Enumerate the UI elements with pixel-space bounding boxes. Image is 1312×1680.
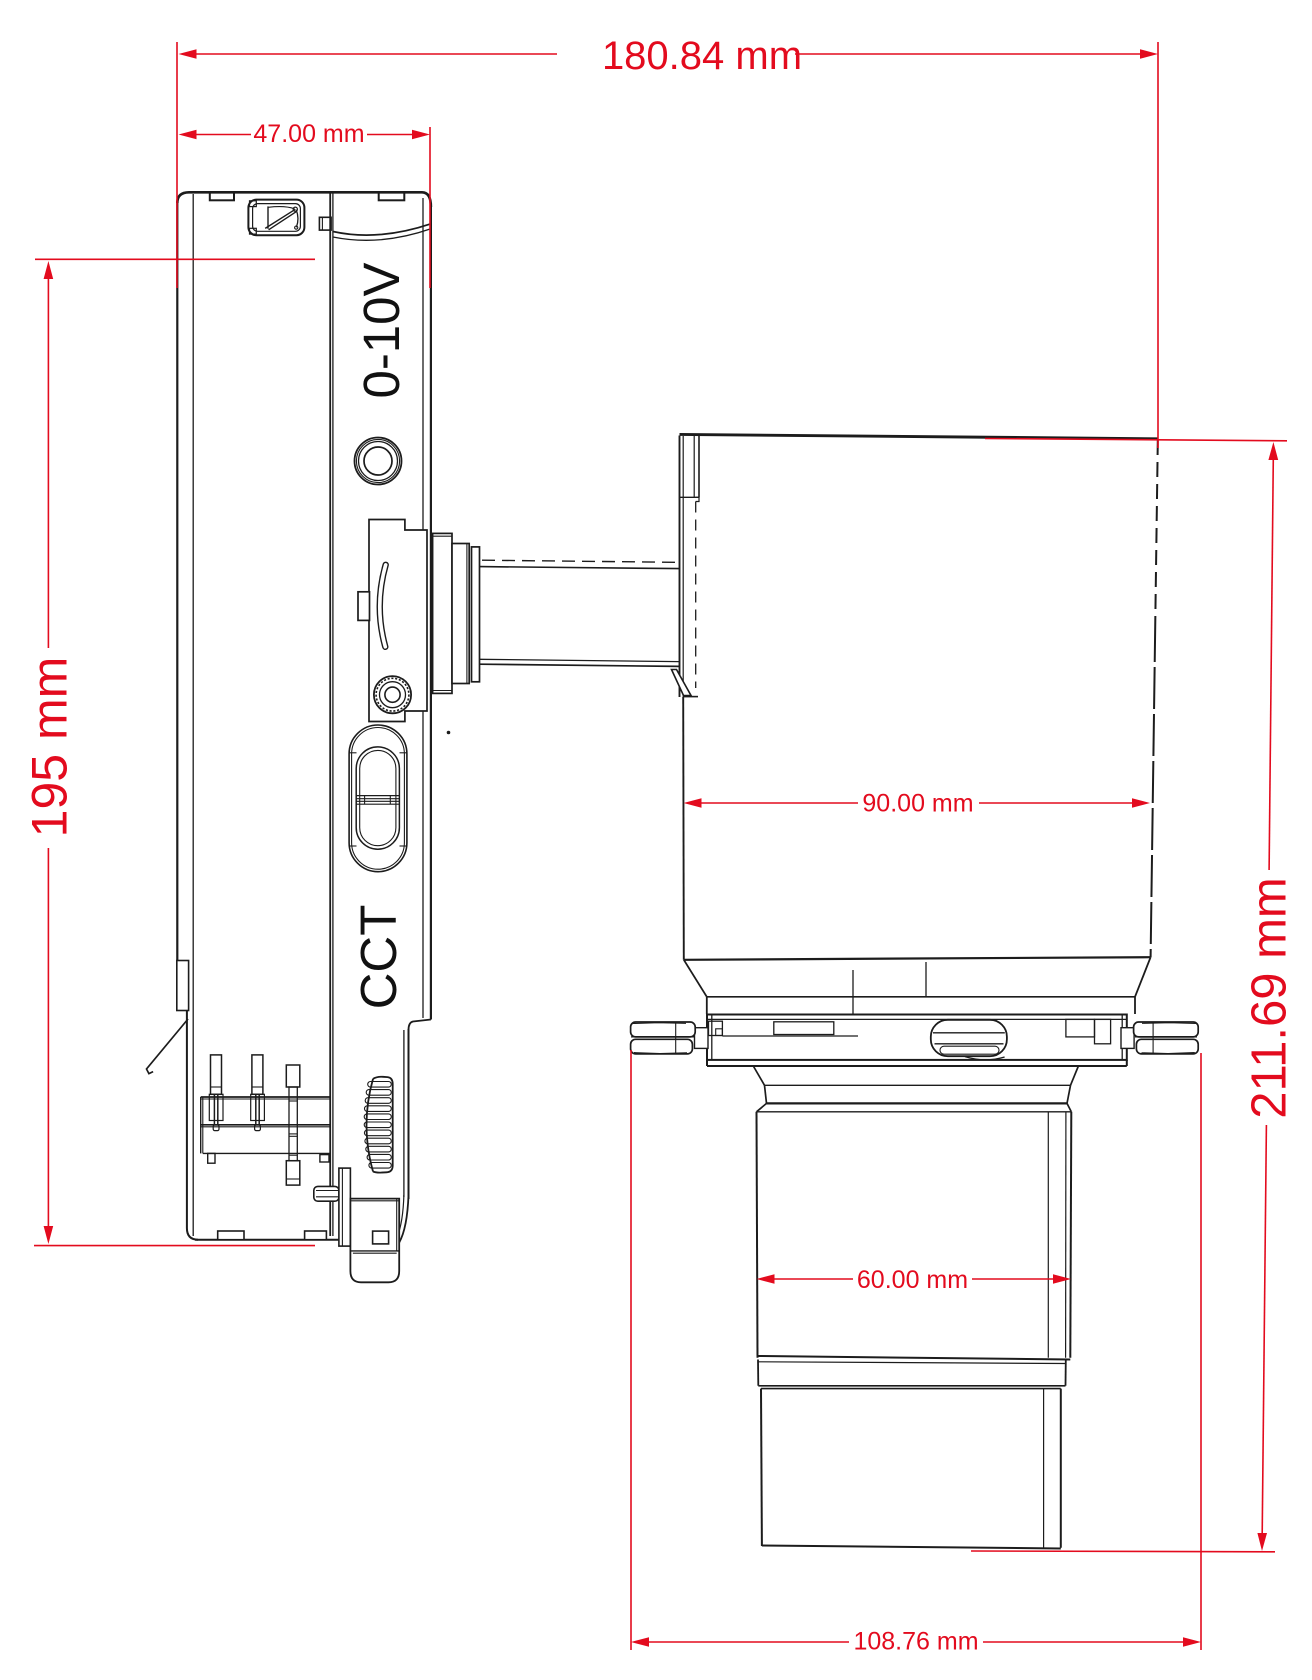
svg-text:108.76 mm: 108.76 mm (853, 1628, 978, 1656)
svg-text:CCT: CCT (350, 905, 407, 1010)
svg-text:60.00 mm: 60.00 mm (857, 1266, 968, 1294)
svg-text:0-10V: 0-10V (353, 262, 410, 398)
svg-text:180.84 mm: 180.84 mm (602, 34, 802, 78)
svg-text:195 mm: 195 mm (22, 657, 78, 838)
svg-text:47.00 mm: 47.00 mm (253, 120, 364, 148)
svg-text:211.69 mm: 211.69 mm (1243, 877, 1297, 1118)
svg-text:90.00 mm: 90.00 mm (862, 790, 973, 818)
